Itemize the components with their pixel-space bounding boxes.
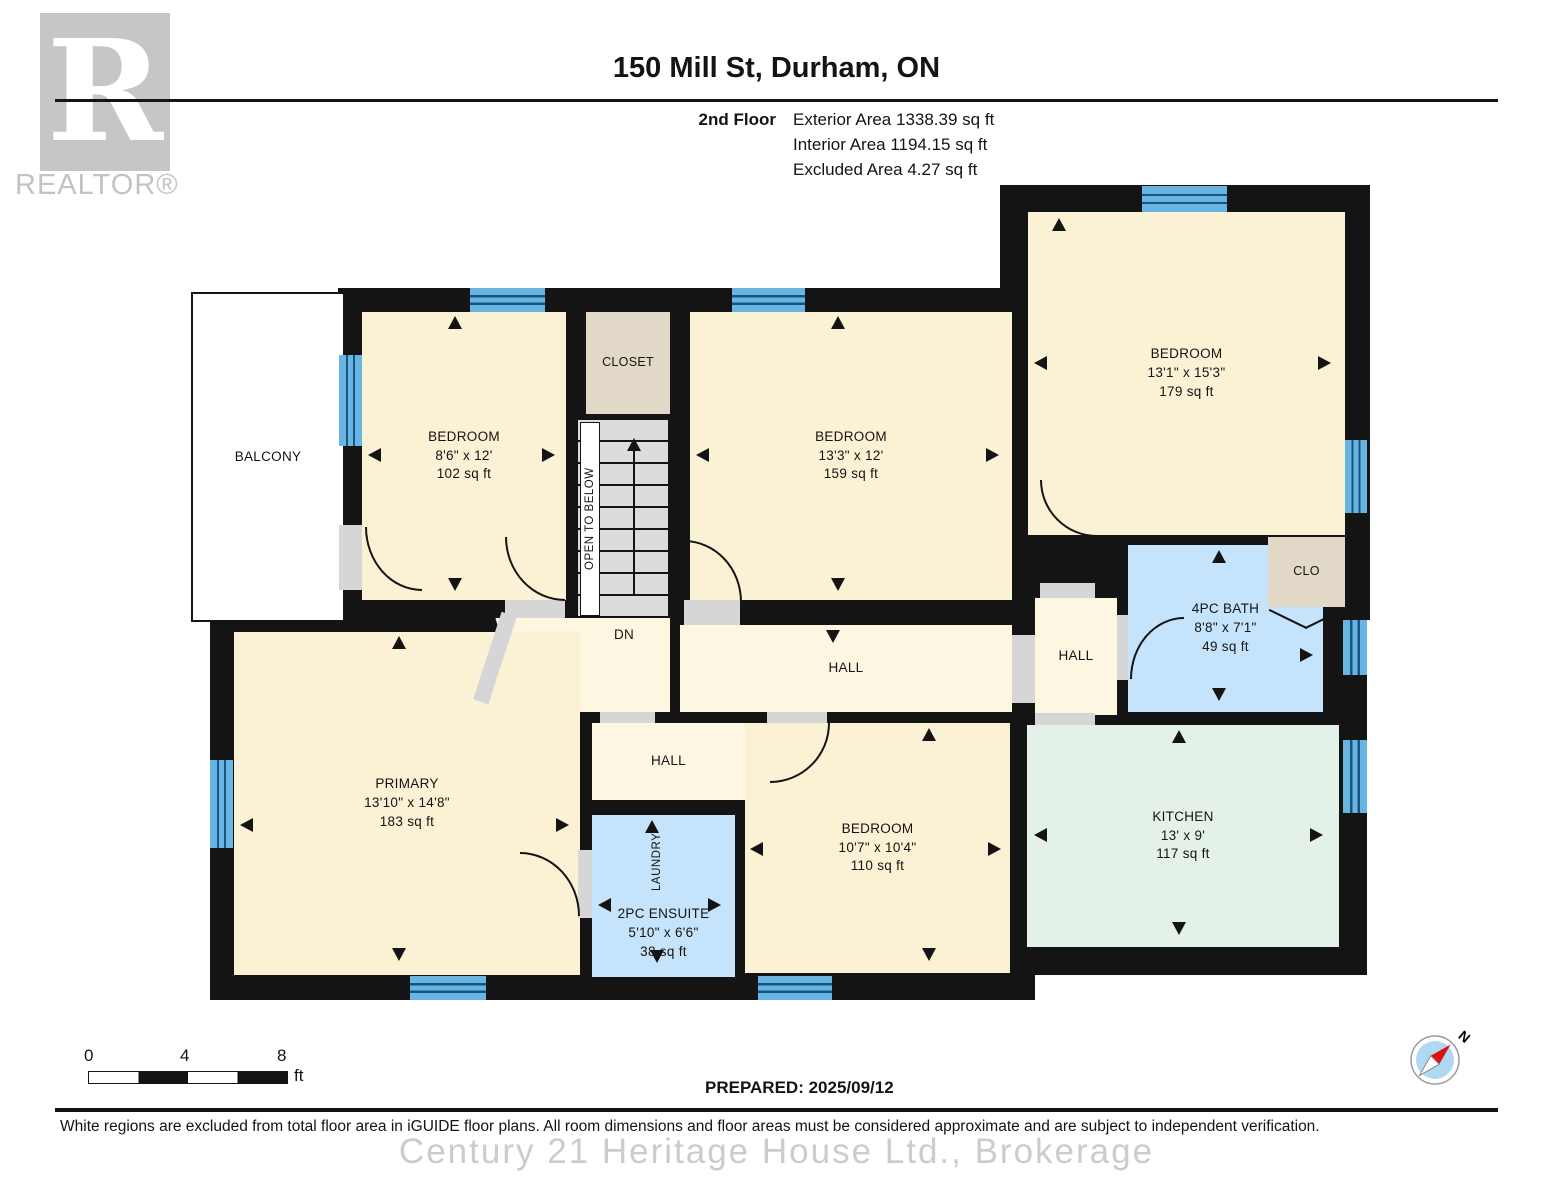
- room-closet: CLOSET: [586, 312, 670, 414]
- direction-arrow: [556, 818, 569, 832]
- room-label: CLO: [1293, 563, 1320, 581]
- laundry-label: LAUNDRY: [648, 822, 666, 902]
- door: [600, 712, 655, 723]
- direction-arrow: [598, 898, 611, 912]
- page-title: 150 Mill St, Durham, ON: [0, 52, 1553, 85]
- realtor-logo: R: [40, 13, 170, 171]
- open-to-below-strip: OPEN TO BELOW: [580, 422, 600, 616]
- room-label: BEDROOM 13'3" x 12' 159 sq ft: [815, 428, 887, 485]
- room-kitchen: KITCHEN 13' x 9' 117 sq ft: [1027, 725, 1339, 947]
- room-balcony: BALCONY: [191, 292, 345, 622]
- scale-tick-0: 0: [84, 1046, 93, 1066]
- exterior-area: Exterior Area 1338.39 sq ft: [793, 110, 1113, 130]
- door: [1012, 635, 1035, 703]
- window: [1345, 440, 1367, 513]
- room-label: HALL: [829, 659, 864, 678]
- room-label: BEDROOM 10'7" x 10'4" 110 sq ft: [839, 820, 917, 877]
- room-label: 4PC BATH 8'8" x 7'1" 49 sq ft: [1192, 600, 1259, 657]
- direction-arrow: [1034, 356, 1047, 370]
- room-clo: CLO: [1268, 537, 1345, 607]
- door: [767, 712, 827, 723]
- room-hall-mid: HALL: [680, 625, 1012, 712]
- direction-arrow: [1212, 688, 1226, 701]
- room-label: HALL: [651, 752, 686, 771]
- scale-bar: [88, 1071, 288, 1084]
- brokerage-watermark: Century 21 Heritage House Ltd., Brokerag…: [0, 1132, 1553, 1172]
- door: [1040, 583, 1095, 598]
- direction-arrow: [392, 636, 406, 649]
- direction-arrow: [650, 950, 664, 963]
- room-label: BEDROOM 8'6" x 12' 102 sq ft: [428, 428, 500, 485]
- room-label: BEDROOM 13'1" x 15'3" 179 sq ft: [1148, 345, 1226, 402]
- room-label: KITCHEN 13' x 9' 117 sq ft: [1152, 808, 1213, 865]
- room-label: CLOSET: [602, 354, 654, 372]
- footer-divider: [55, 1108, 1498, 1112]
- direction-arrow: [988, 842, 1001, 856]
- stairs-direction-line: [633, 446, 635, 596]
- room-primary: PRIMARY 13'10" x 14'8" 183 sq ft: [234, 632, 580, 975]
- direction-arrow: [986, 448, 999, 462]
- door: [1117, 615, 1128, 680]
- room-bedroom-top-mid: BEDROOM 13'3" x 12' 159 sq ft: [690, 312, 1012, 600]
- direction-arrow: [1300, 648, 1313, 662]
- prepared-date: PREPARED: 2025/09/12: [705, 1078, 894, 1098]
- direction-arrow: [542, 448, 555, 462]
- realtor-logo-letter: R: [47, 22, 163, 162]
- excluded-area: Excluded Area 4.27 sq ft: [793, 160, 1113, 180]
- direction-arrow: [1172, 922, 1186, 935]
- room-hall-small: HALL: [592, 723, 745, 800]
- direction-arrow: [1034, 828, 1047, 842]
- direction-arrow: [831, 316, 845, 329]
- floor-label: 2nd Floor: [580, 110, 776, 130]
- direction-arrow: [831, 578, 845, 591]
- window: [410, 976, 486, 1000]
- direction-arrow: [922, 728, 936, 741]
- scale-tick-4: 4: [180, 1046, 189, 1066]
- direction-arrow: [826, 630, 840, 643]
- room-hall-right: HALL: [1035, 598, 1117, 715]
- scale-unit: ft: [294, 1066, 303, 1086]
- room-label: HALL: [1059, 647, 1094, 666]
- door: [339, 525, 362, 590]
- window: [732, 288, 805, 312]
- direction-arrow: [1318, 356, 1331, 370]
- down-label: DN: [614, 626, 634, 645]
- window: [339, 355, 362, 446]
- floor-plan-page: R REALTOR® 150 Mill St, Durham, ON 2nd F…: [0, 0, 1553, 1200]
- window: [758, 976, 832, 1000]
- direction-arrow: [240, 818, 253, 832]
- window: [210, 760, 233, 848]
- direction-arrow: [645, 820, 659, 833]
- direction-arrow: [448, 316, 462, 329]
- direction-arrow: [750, 842, 763, 856]
- direction-arrow: [1172, 730, 1186, 743]
- direction-arrow: [708, 898, 721, 912]
- window: [1142, 186, 1227, 212]
- direction-arrow: [448, 578, 462, 591]
- direction-arrow: [1212, 550, 1226, 563]
- header-divider: [55, 99, 1498, 102]
- stairs-landing: DN: [578, 618, 670, 712]
- direction-arrow: [1310, 828, 1323, 842]
- interior-area: Interior Area 1194.15 sq ft: [793, 135, 1113, 155]
- realtor-logo-text: REALTOR®: [15, 169, 215, 202]
- compass-icon: N: [1405, 1024, 1475, 1092]
- room-label: PRIMARY 13'10" x 14'8" 183 sq ft: [364, 775, 450, 832]
- window: [1343, 740, 1367, 813]
- direction-arrow: [392, 948, 406, 961]
- door: [684, 600, 740, 625]
- direction-arrow: [1052, 218, 1066, 231]
- direction-arrow: [368, 448, 381, 462]
- direction-arrow: [922, 948, 936, 961]
- door: [578, 850, 592, 918]
- room-label: BALCONY: [235, 448, 302, 467]
- door: [1035, 713, 1095, 725]
- window: [470, 288, 545, 312]
- direction-arrow: [696, 448, 709, 462]
- scale-tick-8: 8: [277, 1046, 286, 1066]
- stairs-up-arrow: [627, 438, 641, 451]
- window: [1343, 620, 1367, 675]
- compass-north-label: N: [1456, 1027, 1474, 1046]
